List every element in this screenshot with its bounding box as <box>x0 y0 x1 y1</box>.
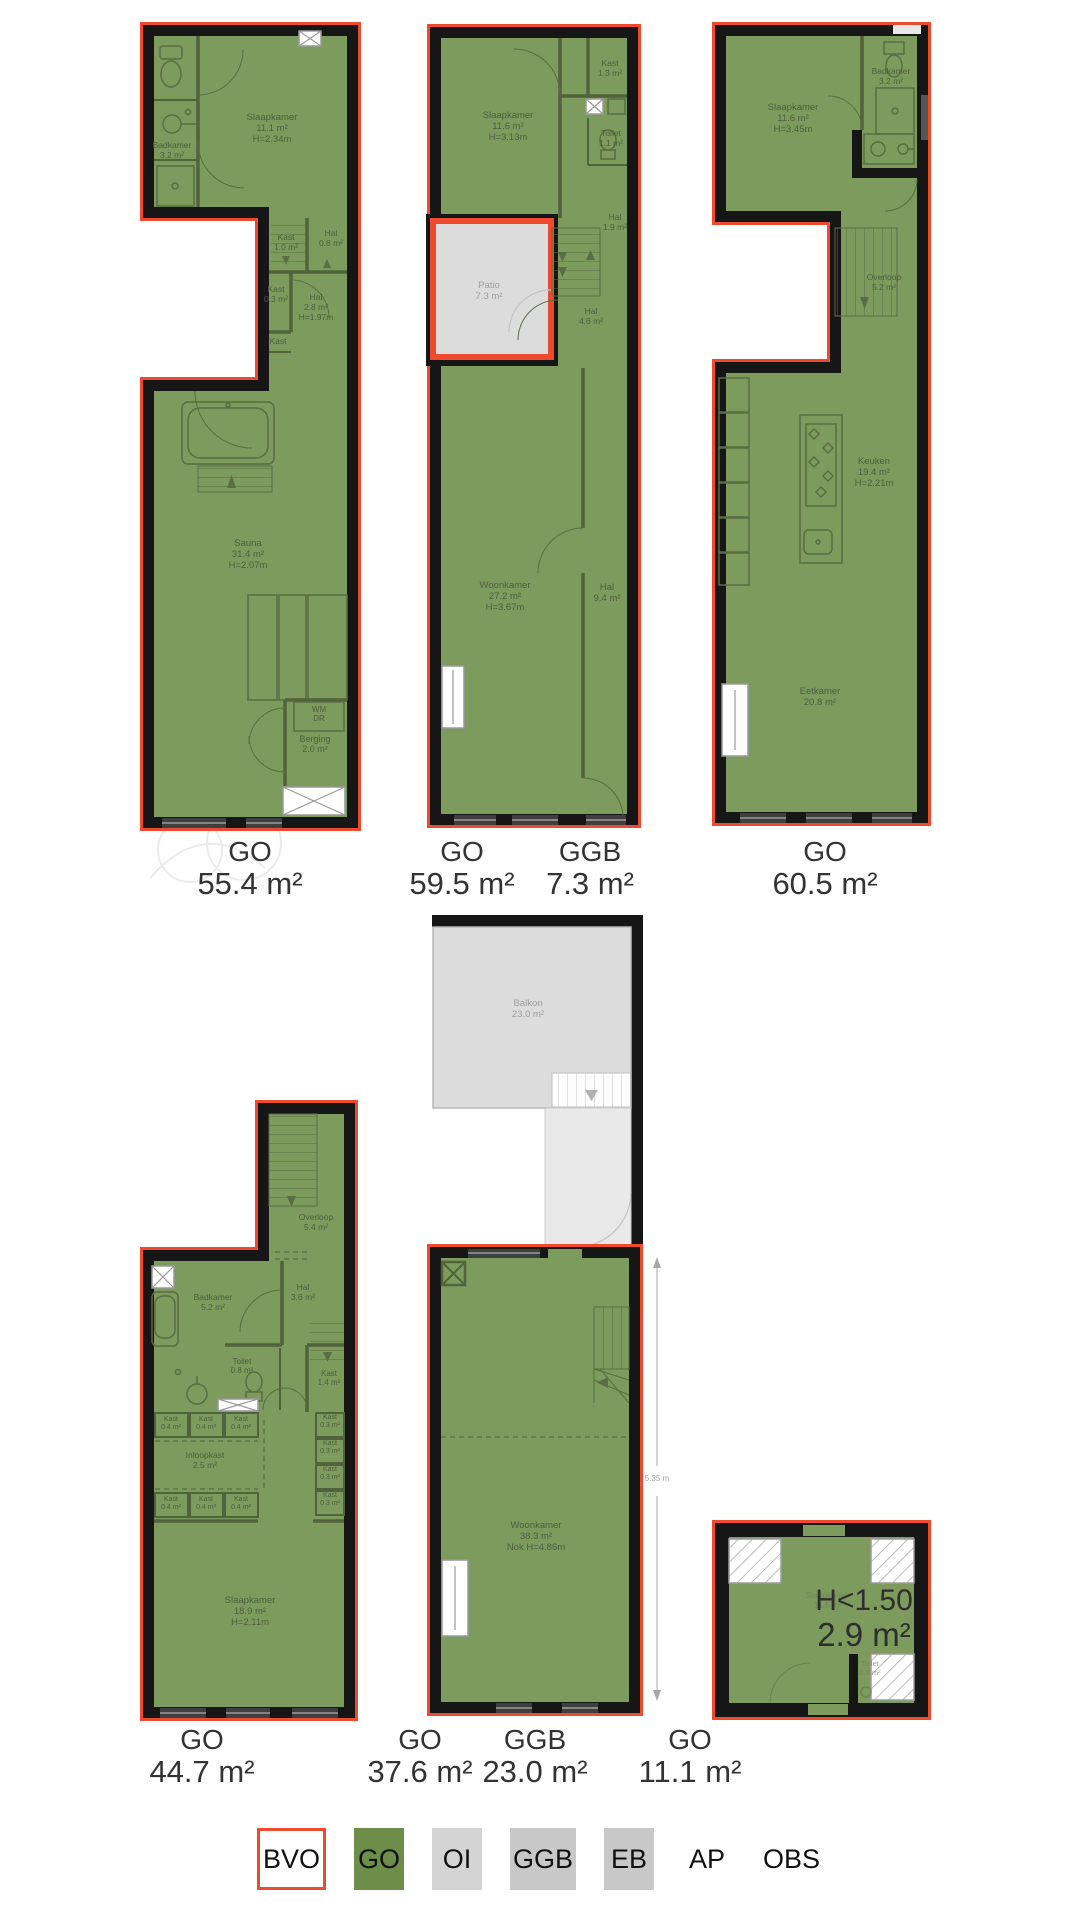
room-label: 0.4 m² <box>196 1424 217 1431</box>
room-label: H=3.45m <box>774 124 813 135</box>
room-label: Slaapkamer <box>768 102 819 113</box>
room-label: Slaapkamer <box>225 1595 276 1606</box>
room-label: 0.4 m² <box>231 1424 252 1431</box>
room-label: H=2.21m <box>855 478 894 489</box>
room-label: Patio <box>478 280 500 291</box>
room-label: Kast <box>323 1440 337 1447</box>
room-label: Sauna <box>234 538 262 549</box>
room-label: 7.3 m² <box>476 291 503 302</box>
room-label: 23.0 m² <box>512 1009 544 1020</box>
room-label: Kast <box>277 232 295 242</box>
area-code: GO <box>149 1724 254 1755</box>
room-label: Hal <box>609 212 622 222</box>
room-label: H=3.67m <box>486 602 525 613</box>
room-label: Badkamer <box>194 1292 233 1302</box>
legend-label-obs: OBS <box>760 1828 823 1890</box>
room-label: H=1.97m <box>299 312 334 322</box>
room-label: Berging <box>299 734 330 744</box>
room-label: 4.6 m² <box>579 316 603 326</box>
area-value: 23.0 m² <box>482 1755 587 1790</box>
room-label: Toilet <box>861 1659 879 1668</box>
area-label-go-2: GO 59.5 m² <box>409 836 514 902</box>
area-code: GGB <box>546 836 634 867</box>
area-value: 44.7 m² <box>149 1755 254 1790</box>
balcony-section: Balkon23.0 m² <box>432 915 643 1247</box>
room-label: H=3.13m <box>489 132 528 143</box>
room-label: 0.8 m² <box>231 1366 254 1375</box>
room-label: 3.2 m² <box>879 76 903 86</box>
legend: BVO GO OI GGB EB AP OBS <box>0 1828 1080 1890</box>
area-code: GO <box>197 836 302 867</box>
room-label: WM <box>312 705 327 714</box>
area-value: 60.5 m² <box>772 867 877 902</box>
area-label-go-5: GO 37.6 m² <box>367 1724 472 1790</box>
area-value: 55.4 m² <box>197 867 302 902</box>
room-label: 1.1 m² <box>599 138 623 148</box>
room-label: 31.4 m² <box>232 549 264 560</box>
room-label: Toilet <box>233 1357 252 1366</box>
room-label: Hal <box>585 306 598 316</box>
room-label: 0.4 m² <box>196 1504 217 1511</box>
legend-swatch-ggb: GGB <box>510 1828 576 1890</box>
floorplan-unit-5: Woonkamer38.3 m²Nok H=4.86m5.35 m <box>430 1247 670 1713</box>
room-label: 0.4 m² <box>161 1424 182 1431</box>
room-label: Nok H=4.86m <box>507 1542 565 1553</box>
room-label: Kast <box>323 1466 337 1473</box>
area-code: GO <box>772 836 877 867</box>
room-label: Kast <box>323 1414 337 1421</box>
room-label: Kast <box>267 284 285 294</box>
room-label: Kast <box>199 1416 213 1423</box>
room-label: H=2.07m <box>229 560 268 571</box>
floorplan-unit-4: Overloop5.4 m²Badkamer5.2 m²Hal3.6 m²Toi… <box>143 1103 355 1718</box>
room-label: Kast <box>234 1496 248 1503</box>
floorplan-unit-6: Slaapkamer11.5 m²Toilet0.9 m²H<1.502.9 m… <box>715 1523 928 1717</box>
room-label: Inloopkast <box>186 1450 225 1460</box>
area-label-ggb-2: GGB 23.0 m² <box>482 1724 587 1790</box>
legend-swatch-eb: EB <box>604 1828 654 1890</box>
room-label: Woonkamer <box>510 1520 561 1531</box>
legend-swatch-bvo: BVO <box>257 1828 326 1890</box>
area-label-go-6: GO 11.1 m² <box>639 1724 742 1790</box>
room-label: 11.1 m² <box>256 123 288 134</box>
room-label: 2.8 m² <box>304 302 328 312</box>
floorplan-page: Badkamer3.2 m²Slaapkamer11.1 m²H=2.34mKa… <box>0 0 1080 1920</box>
room-label: 27.2 m² <box>489 591 521 602</box>
area-code: GO <box>367 1724 472 1755</box>
room-label: Badkamer <box>872 66 911 76</box>
room-label: Hal <box>600 582 614 593</box>
room-label: Keuken <box>858 456 890 467</box>
room-label: Hal <box>325 228 338 238</box>
room-label: 0.4 m² <box>231 1504 252 1511</box>
room-label: 19.4 m² <box>858 467 890 478</box>
room-label: Hal <box>297 1282 310 1292</box>
area-label-go-4: GO 44.7 m² <box>149 1724 254 1790</box>
room-label: Eetkamer <box>800 686 841 697</box>
area-label-ggb-1: GGB 7.3 m² <box>546 836 634 902</box>
legend-label-ap: AP <box>682 1828 732 1890</box>
room-label: Kast <box>164 1496 178 1503</box>
room-label: Slaapkamer <box>483 110 534 121</box>
area-code: GGB <box>482 1724 587 1755</box>
room-label: 0.3 m² <box>264 294 288 304</box>
room-label: Kast <box>164 1416 178 1423</box>
area-code: GO <box>409 836 514 867</box>
room-label: 0.8 m² <box>319 238 343 248</box>
room-label: Balkon <box>513 998 542 1009</box>
area-value: 37.6 m² <box>367 1755 472 1790</box>
room-label: 5.4 m² <box>304 1222 328 1232</box>
area-value: 59.5 m² <box>409 867 514 902</box>
room-label: 1.3 m² <box>598 68 622 78</box>
room-label: 0.3 m² <box>320 1500 341 1507</box>
room-label: 1.0 m² <box>274 242 298 252</box>
legend-swatch-go: GO <box>354 1828 404 1890</box>
room-label: 9.4 m² <box>594 593 621 604</box>
room-label: DR <box>313 714 325 723</box>
room-label: Kast <box>269 336 287 346</box>
area-value: 11.1 m² <box>639 1755 742 1790</box>
room-label: Overloop <box>867 272 902 282</box>
area-label-go-1: GO 55.4 m² <box>197 836 302 902</box>
room-label: 0.3 m² <box>320 1448 341 1455</box>
room-label: 3.2 m² <box>160 150 184 160</box>
room-label: Kast <box>601 58 619 68</box>
floorplan-unit-3: Slaapkamer11.6 m²H=3.45mBadkamer3.2 m²Ov… <box>715 25 928 823</box>
room-label: 18.9 m² <box>234 1606 266 1617</box>
room-label: 11.6 m² <box>492 121 524 132</box>
room-label: 1.4 m² <box>318 1378 341 1387</box>
room-label: H=2.11m <box>231 1617 269 1628</box>
room-label: 0.3 m² <box>320 1474 341 1481</box>
room-label: 2.5 m² <box>193 1460 217 1470</box>
room-label: 0.9 m² <box>859 1668 881 1677</box>
room-label: 2.9 m² <box>817 1616 911 1653</box>
area-value: 7.3 m² <box>546 867 634 902</box>
room-label: Overloop <box>299 1212 334 1222</box>
room-label: 0.4 m² <box>161 1504 182 1511</box>
room-label: 5.2 m² <box>201 1302 225 1312</box>
room-label: Badkamer <box>153 140 192 150</box>
room-label: 3.6 m² <box>291 1292 315 1302</box>
room-label: Kast <box>234 1416 248 1423</box>
room-label: Kast <box>321 1369 338 1378</box>
legend-swatch-oi: OI <box>432 1828 482 1890</box>
room-label: 5.35 m <box>645 1474 670 1483</box>
room-label: Kast <box>199 1496 213 1503</box>
room-label: 2.0 m² <box>302 744 328 754</box>
room-label: H<1.50 <box>815 1584 913 1617</box>
room-label: 1.9 m² <box>603 222 627 232</box>
room-label: 38.3 m² <box>520 1531 552 1542</box>
area-code: GO <box>639 1724 742 1755</box>
room-label: 0.3 m² <box>320 1422 341 1429</box>
room-label: 5.2 m² <box>872 282 896 292</box>
room-label: Slaapkamer <box>247 112 298 123</box>
floorplan-canvas: Badkamer3.2 m²Slaapkamer11.1 m²H=2.34mKa… <box>0 0 1080 1920</box>
floorplan-unit-2: Slaapkamer11.6 m²H=3.13mKast1.3 m²Toilet… <box>426 27 638 825</box>
area-label-go-3: GO 60.5 m² <box>772 836 877 902</box>
room-label: Hal <box>310 292 323 302</box>
room-label: 20.8 m² <box>804 697 836 708</box>
room-label: H=2.34m <box>253 134 292 145</box>
room-label: Woonkamer <box>479 580 530 591</box>
floorplan-unit-1: Badkamer3.2 m²Slaapkamer11.1 m²H=2.34mKa… <box>143 25 358 828</box>
room-label: Toilet <box>601 128 621 138</box>
room-label: 11.6 m² <box>777 113 809 124</box>
room-label: Kast <box>323 1492 337 1499</box>
